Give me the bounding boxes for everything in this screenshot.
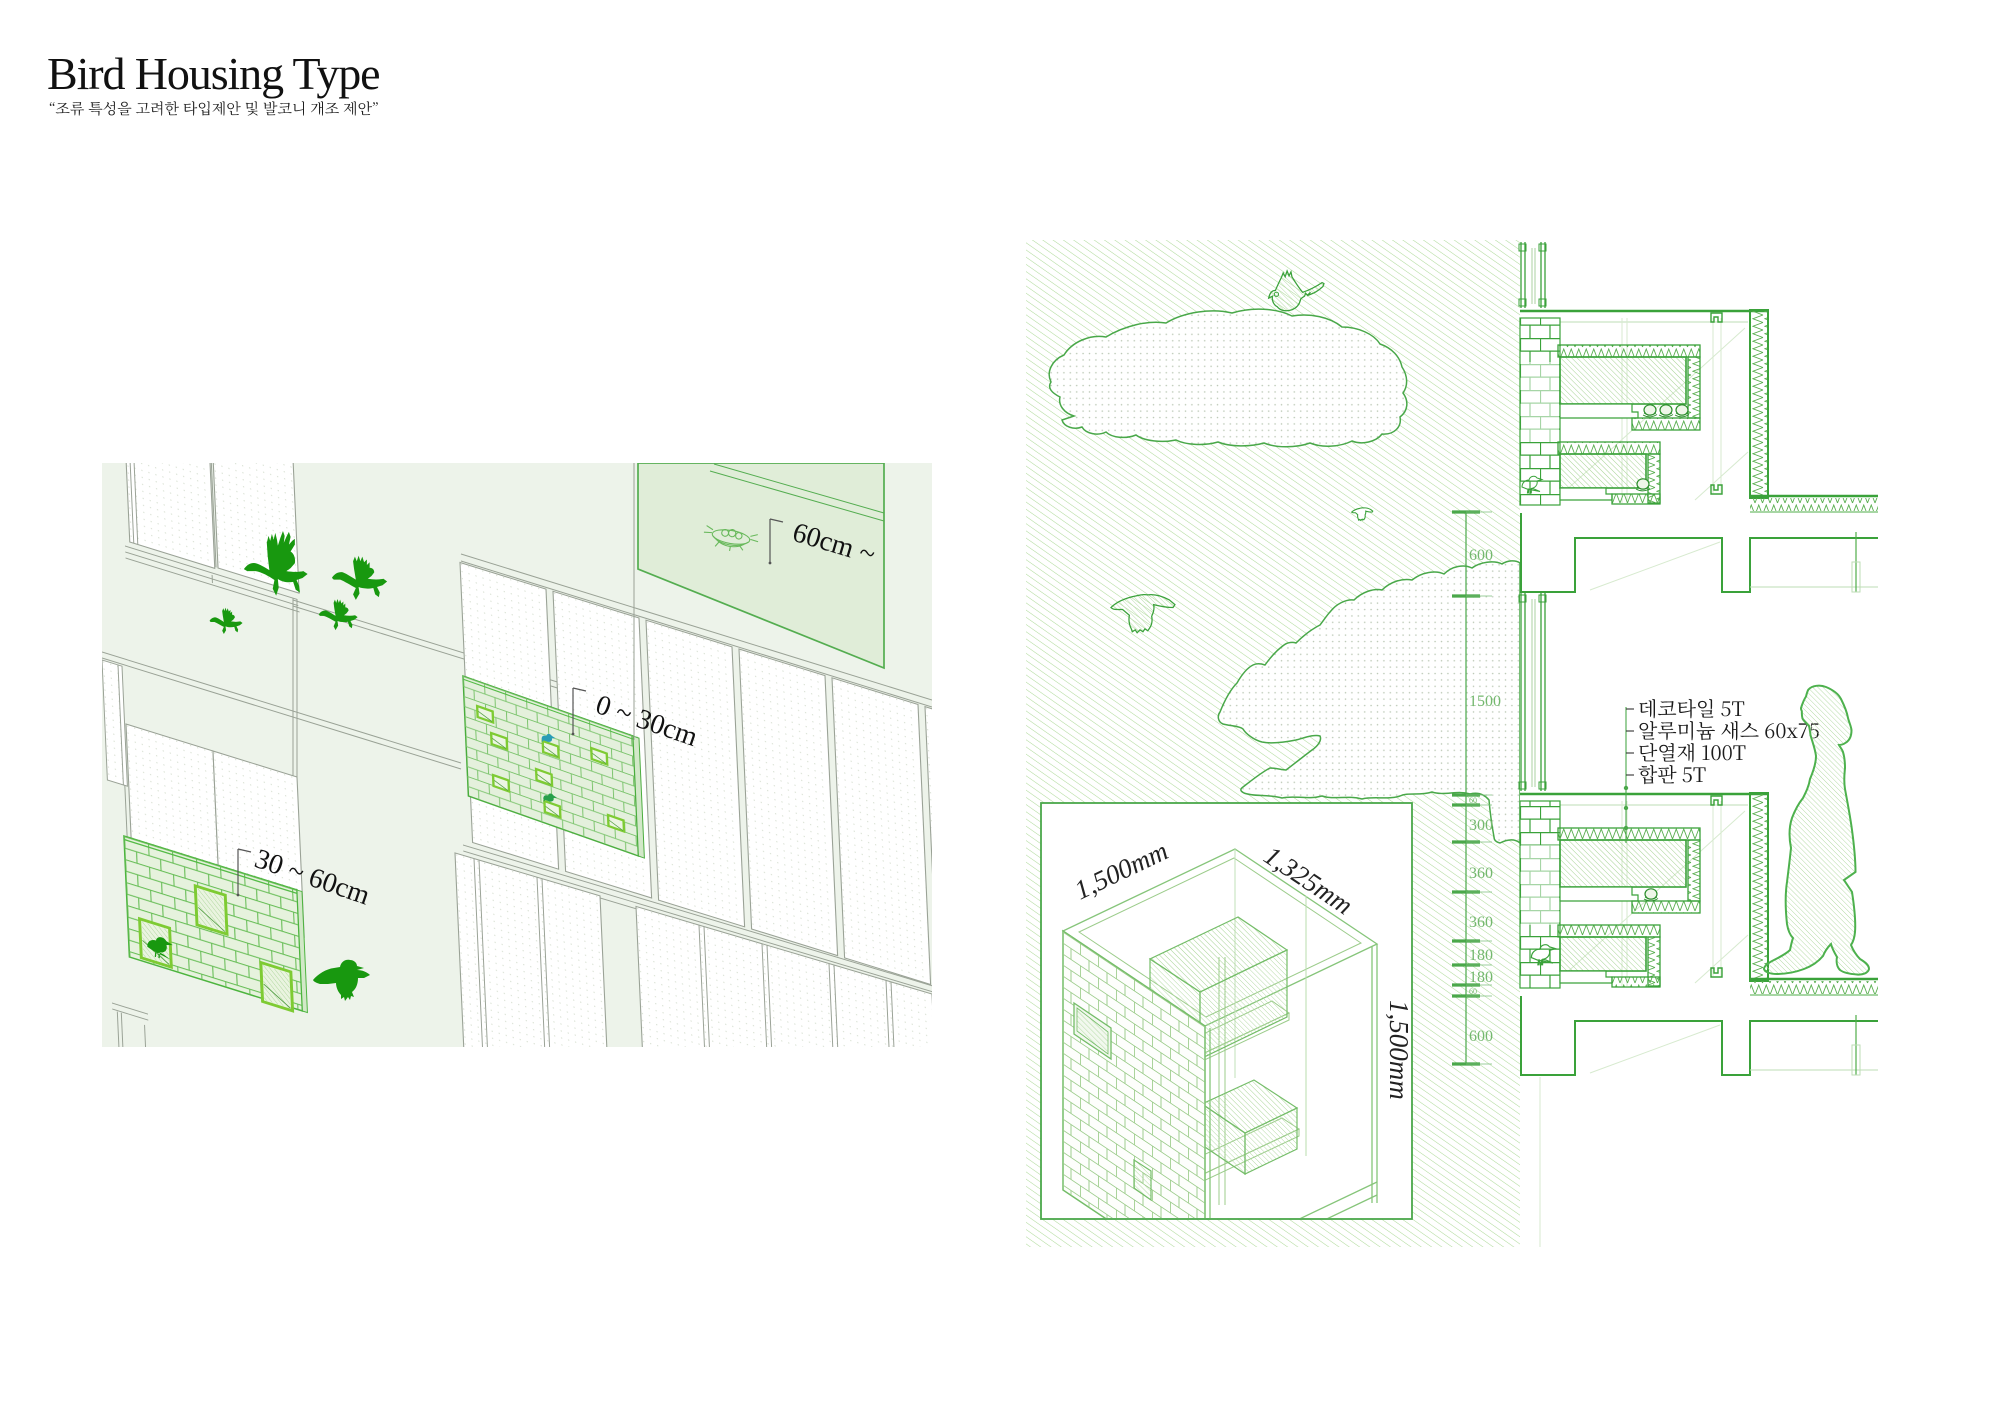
- svg-text:1500: 1500: [1469, 693, 1501, 710]
- svg-text:60: 60: [1469, 987, 1477, 996]
- svg-text:60: 60: [1469, 796, 1477, 805]
- svg-text:600: 600: [1469, 1028, 1493, 1045]
- svg-text:300: 300: [1469, 817, 1493, 834]
- svg-text:600: 600: [1469, 547, 1493, 564]
- svg-text:180: 180: [1469, 969, 1493, 986]
- svg-text:360: 360: [1469, 914, 1493, 931]
- svg-text:1,500mm: 1,500mm: [1384, 1000, 1414, 1100]
- svg-text:Bird Housing Type: Bird Housing Type: [47, 48, 379, 99]
- svg-text:180: 180: [1469, 947, 1493, 964]
- svg-text:360: 360: [1469, 865, 1493, 882]
